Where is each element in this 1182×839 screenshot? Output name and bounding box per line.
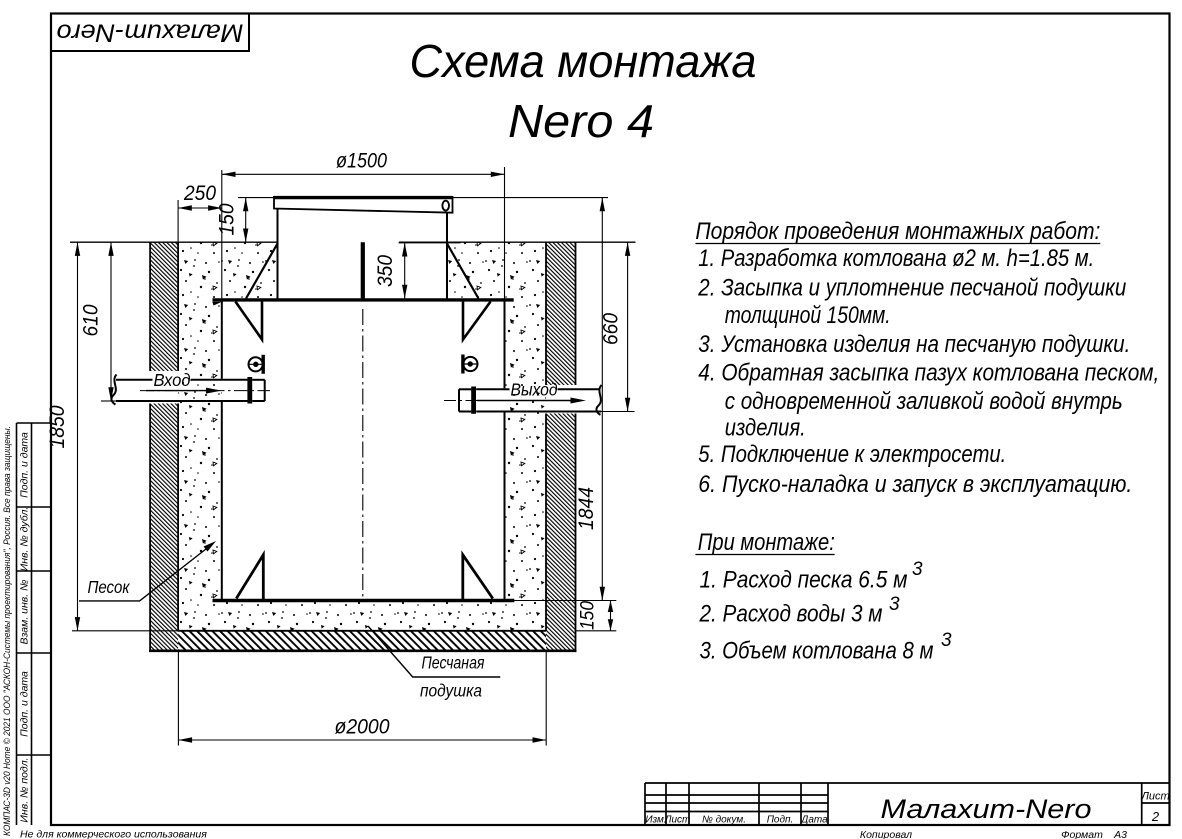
- svg-text:Лист: Лист: [664, 815, 691, 826]
- svg-text:5. Подключение к электросети.: 5. Подключение к электросети.: [698, 441, 1006, 468]
- svg-text:Изм.: Изм.: [645, 815, 666, 826]
- svg-text:Схема монтажа: Схема монтажа: [410, 35, 757, 87]
- svg-text:толщиной 150мм.: толщиной 150мм.: [725, 302, 891, 329]
- svg-text:3. Объем котлована 8 м: 3. Объем котлована 8 м: [700, 638, 934, 665]
- svg-text:Малахит-Nero: Малахит-Nero: [881, 794, 1092, 824]
- svg-text:Nero 4: Nero 4: [508, 95, 654, 147]
- svg-text:При монтаже:: При монтаже:: [698, 529, 835, 556]
- svg-text:ø2000: ø2000: [335, 716, 390, 739]
- svg-text:350: 350: [374, 255, 397, 287]
- svg-text:150: 150: [216, 203, 239, 235]
- svg-text:1. Разработка котлована ø2 м.: 1. Разработка котлована ø2 м. h=1.85 м.: [698, 245, 1094, 272]
- svg-text:2. Расход воды 3 м: 2. Расход воды 3 м: [699, 600, 883, 627]
- svg-text:1. Расход песка 6.5 м: 1. Расход песка 6.5 м: [700, 567, 908, 594]
- svg-text:250: 250: [183, 182, 216, 205]
- svg-text:Порядок проведения монтажных р: Порядок проведения монтажных работ:: [695, 218, 1100, 245]
- svg-text:Взам. инв. №: Взам. инв. №: [19, 580, 31, 645]
- svg-text:Вход: Вход: [154, 370, 191, 390]
- svg-text:Не для коммерческого использов: Не для коммерческого использования: [20, 829, 207, 839]
- svg-text:3: 3: [889, 594, 900, 615]
- svg-text:2: 2: [1151, 809, 1160, 824]
- svg-text:Инв. № дубл.: Инв. № дубл.: [19, 507, 31, 572]
- svg-text:Выход: Выход: [511, 380, 558, 400]
- svg-text:подушка: подушка: [420, 681, 482, 701]
- svg-text:610: 610: [80, 304, 103, 336]
- svg-text:Лист: Лист: [1140, 791, 1169, 803]
- svg-text:1844: 1844: [575, 487, 598, 530]
- svg-text:2. Засыпка и уплотнение песчан: 2. Засыпка и уплотнение песчаной подушки: [697, 274, 1126, 301]
- svg-text:Песок: Песок: [88, 577, 131, 597]
- svg-text:с одновременной заливкой водой: с одновременной заливкой водой внутрь: [725, 388, 1123, 415]
- svg-text:4. Обратная засыпка пазух котл: 4. Обратная засыпка пазух котлована песк…: [698, 360, 1159, 387]
- svg-text:КОМПАС-3D v20 Home © 2021 ООО: КОМПАС-3D v20 Home © 2021 ООО "АСКОН-Сис…: [2, 426, 13, 836]
- svg-text:Подп. и дата: Подп. и дата: [19, 671, 31, 737]
- svg-text:Малахит-Nero: Малахит-Nero: [56, 19, 243, 47]
- svg-text:1850: 1850: [46, 405, 69, 448]
- svg-text:6. Пуско-наладка и запуск в эк: 6. Пуско-наладка и запуск в эксплуатацию…: [698, 471, 1132, 498]
- svg-text:№ докум.: № докум.: [702, 815, 746, 826]
- svg-text:ø1500: ø1500: [336, 150, 387, 173]
- svg-text:Подп.: Подп.: [767, 815, 794, 826]
- svg-text:Дата: Дата: [800, 815, 828, 826]
- svg-text:3: 3: [912, 559, 923, 580]
- svg-text:Формат: Формат: [1061, 829, 1103, 839]
- svg-text:660: 660: [600, 313, 623, 345]
- svg-text:Песчаная: Песчаная: [422, 653, 485, 673]
- svg-text:3. Установка изделия на песчан: 3. Установка изделия на песчаную подушки…: [698, 331, 1130, 358]
- svg-text:3: 3: [941, 630, 952, 651]
- svg-text:Инв. № подл.: Инв. № подл.: [19, 757, 31, 822]
- svg-text:изделия.: изделия.: [725, 414, 806, 441]
- svg-text:А3: А3: [1113, 829, 1127, 839]
- svg-text:150: 150: [578, 601, 599, 630]
- svg-text:Копировал: Копировал: [860, 829, 912, 839]
- svg-text:Подп. и дата: Подп. и дата: [19, 432, 31, 498]
